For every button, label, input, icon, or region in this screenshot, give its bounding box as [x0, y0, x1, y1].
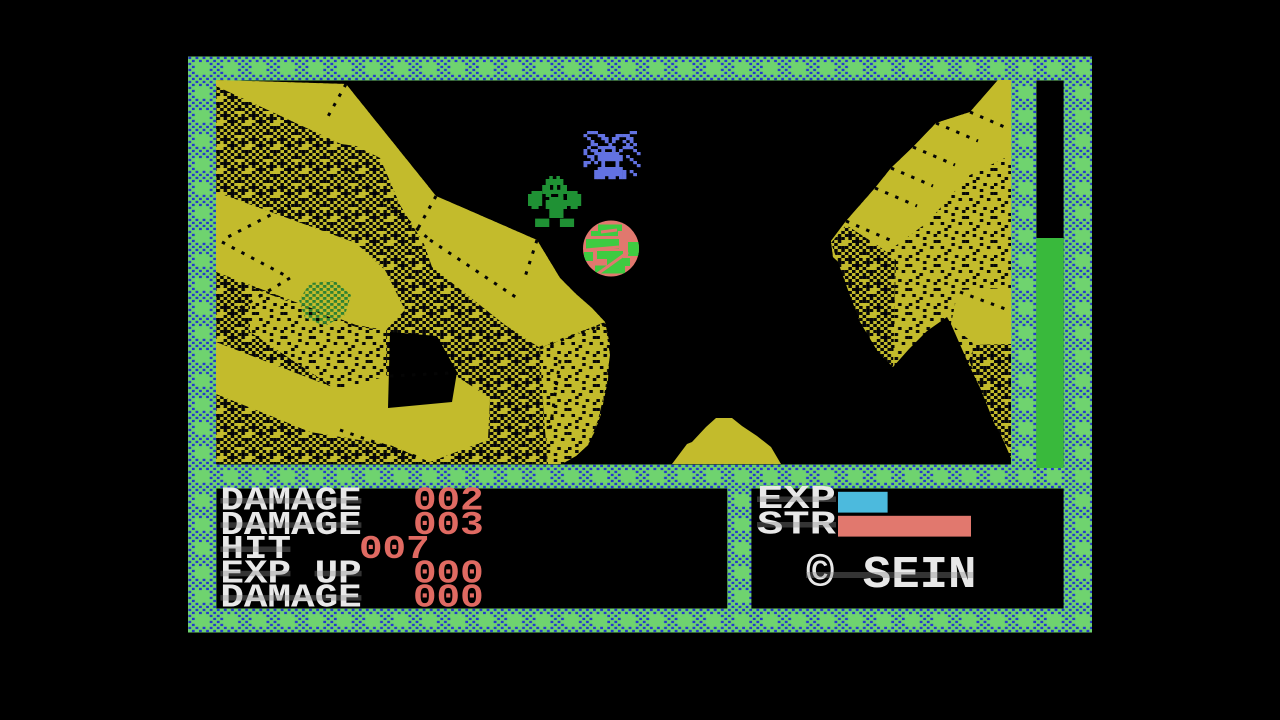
- svg-text:000: 000: [413, 580, 484, 617]
